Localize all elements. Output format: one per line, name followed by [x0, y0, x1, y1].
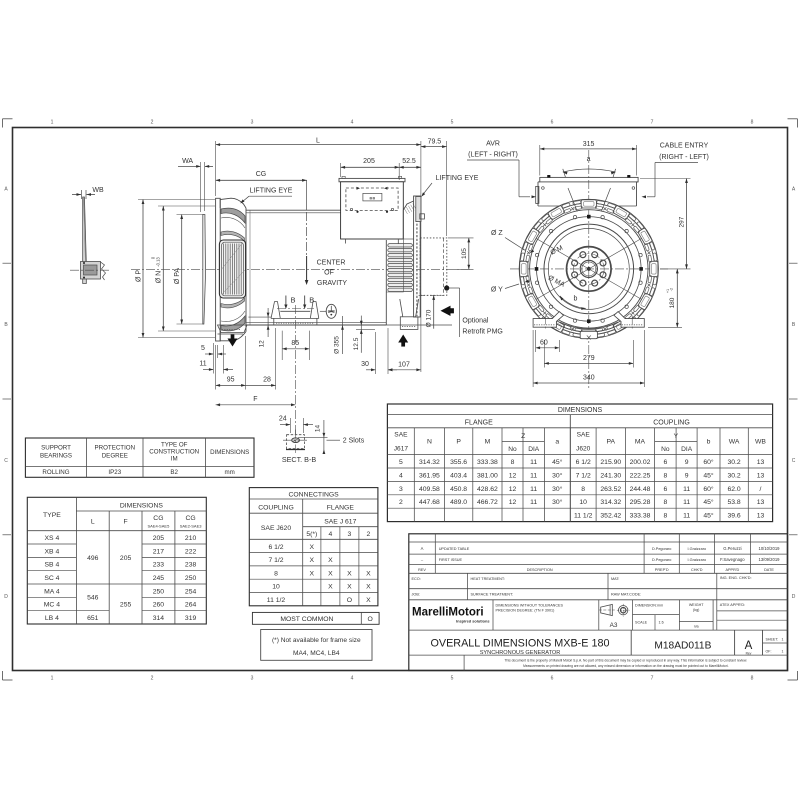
svg-text:52.5: 52.5: [402, 158, 416, 165]
svg-text:OF:: OF:: [766, 650, 772, 654]
svg-text:6: 6: [664, 459, 668, 466]
svg-text:J617: J617: [394, 446, 409, 453]
svg-text:3: 3: [399, 486, 403, 493]
svg-text:215.90: 215.90: [600, 459, 621, 466]
svg-text:DIMENSIONS: DIMENSIONS: [558, 407, 603, 414]
svg-text:5: 5: [201, 345, 205, 352]
svg-text:X: X: [347, 584, 352, 591]
svg-text:7 1/2: 7 1/2: [268, 557, 283, 564]
svg-text:A3: A3: [610, 622, 618, 629]
svg-text:2: 2: [151, 120, 154, 126]
svg-text:3: 3: [348, 531, 352, 538]
svg-text:No: No: [661, 446, 670, 453]
svg-text:244.48: 244.48: [630, 486, 651, 493]
svg-text:651: 651: [87, 615, 99, 622]
svg-text:13: 13: [757, 513, 765, 520]
svg-text:361.95: 361.95: [419, 472, 440, 479]
svg-text:546: 546: [87, 595, 99, 602]
svg-text:315: 315: [583, 141, 595, 148]
svg-text:13: 13: [757, 499, 765, 506]
svg-text:SURFACE TREATMENT:: SURFACE TREATMENT:: [471, 593, 514, 597]
svg-text:8: 8: [664, 472, 668, 479]
svg-text:I.Graizzaro: I.Graizzaro: [688, 547, 707, 551]
svg-text:X: X: [366, 570, 371, 577]
svg-text:XB 4: XB 4: [45, 548, 60, 555]
svg-text:WA: WA: [729, 439, 740, 446]
svg-text:6: 6: [664, 486, 668, 493]
svg-text:P: P: [456, 439, 461, 446]
svg-text:CG: CG: [256, 171, 267, 178]
svg-text:DATE: DATE: [764, 568, 774, 572]
svg-text:1: 1: [51, 676, 54, 682]
svg-text:10/10/2019: 10/10/2019: [759, 546, 781, 551]
svg-text:SAE4-SAE5: SAE4-SAE5: [148, 524, 171, 529]
svg-text:WA: WA: [182, 158, 193, 165]
svg-text:mm: mm: [657, 604, 663, 608]
svg-text:10: 10: [272, 584, 280, 591]
svg-text:REV: REV: [418, 568, 426, 572]
svg-text:13: 13: [757, 472, 765, 479]
svg-text:254: 254: [185, 588, 197, 595]
svg-text:319: 319: [185, 615, 197, 622]
svg-text:MA4, MC4, LB4: MA4, MC4, LB4: [293, 650, 340, 657]
svg-text:X: X: [366, 584, 371, 591]
svg-text:6 1/2: 6 1/2: [576, 459, 591, 466]
svg-text:A: A: [421, 546, 424, 551]
svg-text:X: X: [328, 584, 333, 591]
svg-text:200.02: 200.02: [630, 459, 651, 466]
svg-text:SYNCHRONOUS GENERATOR: SYNCHRONOUS GENERATOR: [480, 650, 561, 656]
svg-text:314.32: 314.32: [419, 459, 440, 466]
svg-text:DIA: DIA: [528, 446, 540, 453]
svg-text:O: O: [368, 616, 373, 623]
svg-text:SECT. B-B: SECT. B-B: [282, 455, 317, 464]
svg-text:SAE: SAE: [577, 432, 591, 439]
svg-text:FLANGE: FLANGE: [327, 505, 355, 512]
svg-text:MC 4: MC 4: [44, 602, 60, 609]
svg-text:PRECISION DEGREE: (TN F 3901): PRECISION DEGREE: (TN F 3901): [496, 608, 555, 612]
svg-text:CABLE ENTRY: CABLE ENTRY: [660, 142, 709, 149]
svg-text:205: 205: [363, 158, 375, 165]
svg-text:SAE: SAE: [394, 432, 408, 439]
svg-text:mm: mm: [225, 469, 235, 476]
svg-text:14: 14: [314, 425, 321, 433]
svg-text:CONSTRUCTION: CONSTRUCTION: [149, 449, 199, 456]
svg-text:TYPE: TYPE: [43, 512, 61, 519]
svg-text:This document is the property: This document is the property of Marelli…: [504, 659, 747, 663]
svg-text:DIMENSIONS WITHOUT TOLERANCES: DIMENSIONS WITHOUT TOLERANCES: [496, 603, 564, 607]
svg-text:1: 1: [51, 120, 54, 126]
svg-text:8: 8: [664, 513, 668, 520]
svg-text:3: 3: [251, 676, 254, 682]
svg-text:MOST COMMON: MOST COMMON: [280, 616, 333, 623]
svg-text:6: 6: [551, 676, 554, 682]
svg-text:RAW MAT.CODE:: RAW MAT.CODE:: [611, 593, 641, 597]
svg-text:D.Pegoraro: D.Pegoraro: [652, 547, 671, 551]
svg-text:10: 10: [579, 499, 587, 506]
svg-text:DIA: DIA: [681, 446, 693, 453]
svg-text:11: 11: [530, 486, 537, 493]
svg-text:2: 2: [367, 531, 371, 538]
svg-text:222: 222: [185, 548, 197, 555]
svg-text:30°: 30°: [552, 498, 563, 506]
svg-text:11: 11: [683, 499, 690, 506]
svg-text:A: A: [745, 640, 753, 652]
svg-text:238: 238: [185, 562, 197, 569]
svg-text:2 Slots: 2 Slots: [343, 438, 365, 445]
svg-text:(RIGHT - LEFT): (RIGHT - LEFT): [659, 154, 709, 161]
svg-text:8: 8: [511, 459, 515, 466]
svg-text:UPDATED TABLE: UPDATED TABLE: [439, 547, 470, 551]
svg-text:IP23: IP23: [108, 469, 121, 476]
svg-text:Ø PA: Ø PA: [174, 268, 181, 285]
svg-text:279: 279: [583, 355, 595, 362]
svg-text:Retrofit PMG: Retrofit PMG: [462, 329, 502, 336]
svg-text:▩▩: ▩▩: [369, 196, 375, 200]
svg-text:COUPLING: COUPLING: [653, 420, 690, 427]
svg-text:7: 7: [651, 120, 654, 126]
svg-text:X: X: [328, 570, 333, 577]
svg-text:7 1/2: 7 1/2: [576, 472, 591, 479]
svg-text:SAE J620: SAE J620: [261, 525, 291, 532]
svg-text:7: 7: [651, 676, 654, 682]
svg-text:COUPLING: COUPLING: [258, 505, 294, 512]
svg-text:CG: CG: [153, 515, 163, 522]
svg-text:260: 260: [153, 602, 165, 609]
svg-text:5: 5: [399, 459, 403, 466]
svg-text:11: 11: [530, 459, 537, 466]
svg-text:355.6: 355.6: [450, 459, 467, 466]
svg-text:F.Savegnago: F.Savegnago: [720, 557, 745, 562]
svg-text:LB 4: LB 4: [45, 615, 59, 622]
svg-text:45°: 45°: [703, 471, 714, 479]
svg-text:(kg): (kg): [693, 608, 699, 612]
svg-text:-2: -2: [670, 288, 674, 291]
svg-text:OF: OF: [324, 270, 334, 277]
svg-text:250: 250: [153, 588, 165, 595]
svg-text:217: 217: [153, 548, 165, 555]
svg-text:45°: 45°: [552, 458, 563, 466]
svg-text:205: 205: [120, 555, 132, 562]
svg-text:8: 8: [274, 570, 278, 577]
svg-text:6 1/2: 6 1/2: [268, 544, 283, 551]
svg-text:60°: 60°: [703, 485, 714, 493]
svg-text:9: 9: [685, 472, 689, 479]
svg-text:Ø N: Ø N: [156, 271, 163, 283]
svg-text:60: 60: [540, 339, 548, 346]
svg-text:IM: IM: [171, 456, 178, 463]
svg-text:381.00: 381.00: [477, 472, 498, 479]
svg-text:MA 4: MA 4: [44, 588, 60, 595]
svg-text:Z: Z: [521, 433, 525, 440]
svg-text:8: 8: [751, 676, 754, 682]
svg-text:PROTECTION: PROTECTION: [95, 445, 136, 452]
svg-text:/: /: [760, 486, 762, 493]
svg-text:G.Peruzzi: G.Peruzzi: [723, 546, 741, 551]
svg-text:-0.13: -0.13: [156, 257, 161, 267]
svg-text:Ø 355: Ø 355: [333, 336, 340, 354]
svg-text:a: a: [555, 439, 559, 446]
svg-text:205: 205: [153, 535, 165, 542]
svg-text:HEAT TREATMENT:: HEAT TREATMENT:: [471, 577, 505, 581]
svg-text:L: L: [316, 138, 320, 145]
svg-text:11: 11: [683, 513, 690, 520]
svg-text:45°: 45°: [703, 512, 714, 520]
svg-text:J620: J620: [576, 446, 591, 453]
svg-text:DEGREE: DEGREE: [102, 453, 128, 460]
svg-text:3: 3: [251, 120, 254, 126]
svg-text:DIMENSIONS: DIMENSIONS: [120, 503, 164, 510]
svg-text:409.58: 409.58: [419, 486, 440, 493]
svg-text:C: C: [4, 458, 8, 464]
svg-text:MAT:: MAT:: [611, 577, 619, 581]
svg-text:LIFTING EYE: LIFTING EYE: [436, 175, 479, 182]
svg-text:496: 496: [87, 555, 99, 562]
svg-text:X: X: [347, 570, 352, 577]
svg-text:TYPE OF: TYPE OF: [161, 442, 188, 449]
svg-text:SAE2-SAE3: SAE2-SAE3: [180, 524, 203, 529]
svg-text:PA: PA: [607, 439, 616, 446]
svg-text:30.2: 30.2: [727, 472, 740, 479]
svg-text:Ø 170: Ø 170: [426, 309, 433, 327]
svg-text:8: 8: [664, 499, 668, 506]
svg-text:SUPPORT: SUPPORT: [41, 445, 71, 452]
svg-text:30: 30: [361, 361, 369, 368]
svg-text:11: 11: [683, 486, 690, 493]
svg-text:264: 264: [185, 602, 197, 609]
svg-text:Measurements on printed drawin: Measurements on printed drawing are not …: [523, 664, 729, 668]
svg-text:11: 11: [530, 499, 537, 506]
svg-text:X: X: [366, 597, 371, 604]
svg-text:180: 180: [669, 297, 676, 308]
svg-text:263.52: 263.52: [600, 486, 621, 493]
svg-text:5(*): 5(*): [306, 531, 317, 538]
svg-text:SHEET:: SHEET:: [766, 638, 779, 642]
svg-text:CENTER: CENTER: [317, 260, 346, 267]
svg-text:250: 250: [185, 575, 197, 582]
svg-text:AVR: AVR: [486, 140, 500, 147]
svg-text:Y: Y: [674, 433, 679, 440]
svg-text:314: 314: [153, 615, 165, 622]
svg-text:D: D: [4, 594, 8, 600]
svg-text:210: 210: [185, 535, 197, 542]
svg-text:(*) Not available for frame si: (*) Not available for frame size: [272, 637, 361, 644]
svg-text:F: F: [124, 519, 128, 526]
svg-text:45°: 45°: [703, 498, 714, 506]
svg-text:M18AD011B: M18AD011B: [654, 641, 711, 652]
svg-text:I.Graizzaro: I.Graizzaro: [688, 558, 707, 562]
svg-text:Ø P: Ø P: [136, 270, 143, 282]
svg-text:SC 4: SC 4: [44, 575, 59, 582]
svg-text:12: 12: [509, 486, 517, 493]
svg-text:MarelliMotori: MarelliMotori: [412, 607, 484, 619]
svg-text:79.5: 79.5: [428, 139, 442, 146]
svg-text:333.38: 333.38: [630, 513, 651, 520]
svg-text:Inspired solutions: Inspired solutions: [456, 618, 490, 623]
svg-text:9: 9: [685, 459, 689, 466]
svg-text:222.25: 222.25: [630, 472, 651, 479]
svg-text:DIMENSION:: DIMENSION:: [635, 604, 657, 608]
svg-text:340: 340: [583, 374, 595, 381]
svg-text:4: 4: [329, 531, 333, 538]
svg-text:1:6: 1:6: [659, 621, 664, 625]
svg-text:333.38: 333.38: [477, 459, 498, 466]
svg-text:13/09/2019: 13/09/2019: [759, 557, 781, 562]
svg-text:B2: B2: [170, 469, 178, 476]
svg-text:11 1/2: 11 1/2: [574, 513, 593, 520]
svg-text:O: O: [347, 597, 352, 604]
svg-text:466.72: 466.72: [477, 499, 498, 506]
svg-text:4: 4: [351, 676, 354, 682]
svg-text:4: 4: [399, 472, 403, 479]
svg-text:N: N: [427, 439, 432, 446]
svg-text:255: 255: [120, 601, 132, 608]
svg-text:FLANGE: FLANGE: [465, 420, 493, 427]
svg-text:53.8: 53.8: [727, 499, 740, 506]
svg-text:233: 233: [153, 562, 165, 569]
svg-text:LIFTING EYE: LIFTING EYE: [250, 187, 293, 194]
svg-text:CHK'D: CHK'D: [691, 568, 703, 572]
svg-text:BEARINGS: BEARINGS: [40, 453, 72, 460]
svg-text:XS 4: XS 4: [45, 535, 60, 542]
svg-text:SB 4: SB 4: [45, 562, 60, 569]
svg-text:X: X: [328, 557, 333, 564]
svg-text:APPR'D: APPR'D: [725, 568, 739, 572]
svg-text:ATEX APPR'D:: ATEX APPR'D:: [720, 603, 745, 607]
svg-text:13: 13: [757, 459, 765, 466]
svg-text:GRAVITY: GRAVITY: [317, 280, 348, 287]
svg-text:B: B: [309, 295, 314, 304]
svg-text:12: 12: [258, 340, 265, 348]
svg-text:Ø Z: Ø Z: [491, 230, 503, 237]
svg-text:11 1/2: 11 1/2: [267, 597, 286, 604]
svg-text:12: 12: [509, 472, 517, 479]
svg-text:12.5: 12.5: [353, 337, 360, 350]
svg-text:5: 5: [451, 676, 454, 682]
svg-text:D.Pegoraro: D.Pegoraro: [652, 558, 671, 562]
svg-text:12: 12: [509, 499, 517, 506]
svg-text:X: X: [310, 570, 315, 577]
svg-text:SAE J 617: SAE J 617: [324, 519, 356, 526]
svg-text:6: 6: [551, 120, 554, 126]
svg-text:85: 85: [291, 340, 299, 347]
svg-text:WEIGHT: WEIGHT: [689, 603, 704, 607]
svg-text:8: 8: [581, 486, 585, 493]
svg-text:M: M: [485, 439, 491, 446]
svg-text:30°: 30°: [552, 485, 563, 493]
svg-text:SCALE: SCALE: [635, 621, 648, 625]
svg-text:No: No: [508, 446, 517, 453]
svg-text:OVERALL DIMENSIONS MXB-E 180: OVERALL DIMENSIONS MXB-E 180: [430, 638, 609, 650]
svg-text:F: F: [253, 396, 257, 403]
svg-text:489.0: 489.0: [450, 499, 467, 506]
svg-text:30.2: 30.2: [727, 459, 740, 466]
svg-text:DESCRIPTION: DESCRIPTION: [527, 568, 553, 572]
svg-text:D: D: [792, 594, 796, 600]
svg-text:C: C: [792, 458, 796, 464]
svg-text:30°: 30°: [552, 471, 563, 479]
svg-text:JOB:: JOB:: [412, 593, 420, 597]
svg-text:1: 1: [782, 638, 784, 642]
svg-text:(LEFT - RIGHT): (LEFT - RIGHT): [468, 152, 518, 159]
svg-text:DIMENSIONS: DIMENSIONS: [210, 449, 249, 456]
svg-text:24: 24: [279, 416, 287, 423]
svg-text:28: 28: [263, 376, 271, 383]
svg-text:4: 4: [351, 120, 354, 126]
svg-text:Rev: Rev: [746, 651, 752, 655]
svg-text:352.42: 352.42: [600, 513, 621, 520]
svg-text:245: 245: [153, 575, 165, 582]
svg-text:295.28: 295.28: [630, 499, 651, 506]
svg-text:39.6: 39.6: [727, 513, 740, 520]
svg-text:Optional: Optional: [462, 318, 489, 325]
svg-text:CG: CG: [185, 515, 195, 522]
svg-text:2: 2: [399, 499, 403, 506]
svg-text:L: L: [91, 519, 95, 526]
svg-text:b: b: [574, 296, 578, 303]
svg-text:428.62: 428.62: [477, 486, 498, 493]
svg-text:ING. ENG. CHK'D:: ING. ENG. CHK'D:: [720, 576, 752, 580]
svg-text:PREP'D: PREP'D: [655, 568, 669, 572]
svg-text:62.0: 62.0: [727, 486, 740, 493]
svg-text:X: X: [310, 557, 315, 564]
svg-text:a: a: [587, 156, 591, 163]
svg-text:WB: WB: [92, 187, 104, 194]
svg-text:60°: 60°: [703, 458, 714, 466]
svg-text:2: 2: [151, 676, 154, 682]
svg-text:403.4: 403.4: [450, 472, 467, 479]
svg-text:FIRST ISSUE: FIRST ISSUE: [439, 558, 463, 562]
svg-text:5: 5: [451, 120, 454, 126]
svg-text:8: 8: [751, 120, 754, 126]
svg-text:105: 105: [461, 248, 468, 259]
svg-text:450.8: 450.8: [450, 486, 467, 493]
svg-text:B: B: [291, 295, 296, 304]
svg-text:95: 95: [227, 376, 235, 383]
svg-text:314.32: 314.32: [600, 499, 621, 506]
svg-text:241.30: 241.30: [600, 472, 621, 479]
svg-text:MA: MA: [635, 439, 646, 446]
svg-text:WB: WB: [755, 439, 766, 446]
svg-text:ROLLING: ROLLING: [42, 469, 69, 476]
svg-text:1: 1: [782, 650, 784, 654]
svg-text:11: 11: [530, 472, 537, 479]
svg-text:n/a: n/a: [694, 624, 699, 628]
svg-text:ECO:: ECO:: [412, 577, 421, 581]
svg-text:CONNECTINGS: CONNECTINGS: [288, 492, 339, 499]
svg-text:107: 107: [398, 361, 410, 368]
svg-text:447.68: 447.68: [419, 499, 440, 506]
svg-text:Ø Y: Ø Y: [491, 286, 503, 293]
svg-text:X: X: [310, 544, 315, 551]
svg-text:b: b: [707, 439, 711, 446]
svg-text:297: 297: [678, 216, 685, 227]
svg-text:11: 11: [199, 361, 206, 368]
